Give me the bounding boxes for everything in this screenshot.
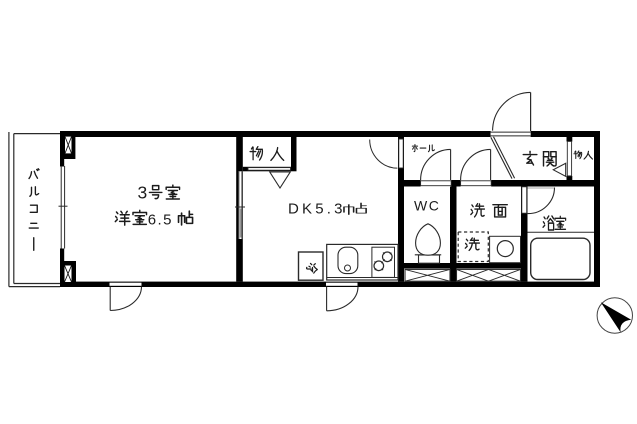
svg-text:3: 3 bbox=[138, 183, 148, 203]
svg-text:DK5.3: DK5.3 bbox=[288, 201, 346, 218]
svg-text:WC: WC bbox=[414, 198, 440, 214]
svg-text:6.5: 6.5 bbox=[148, 211, 173, 228]
